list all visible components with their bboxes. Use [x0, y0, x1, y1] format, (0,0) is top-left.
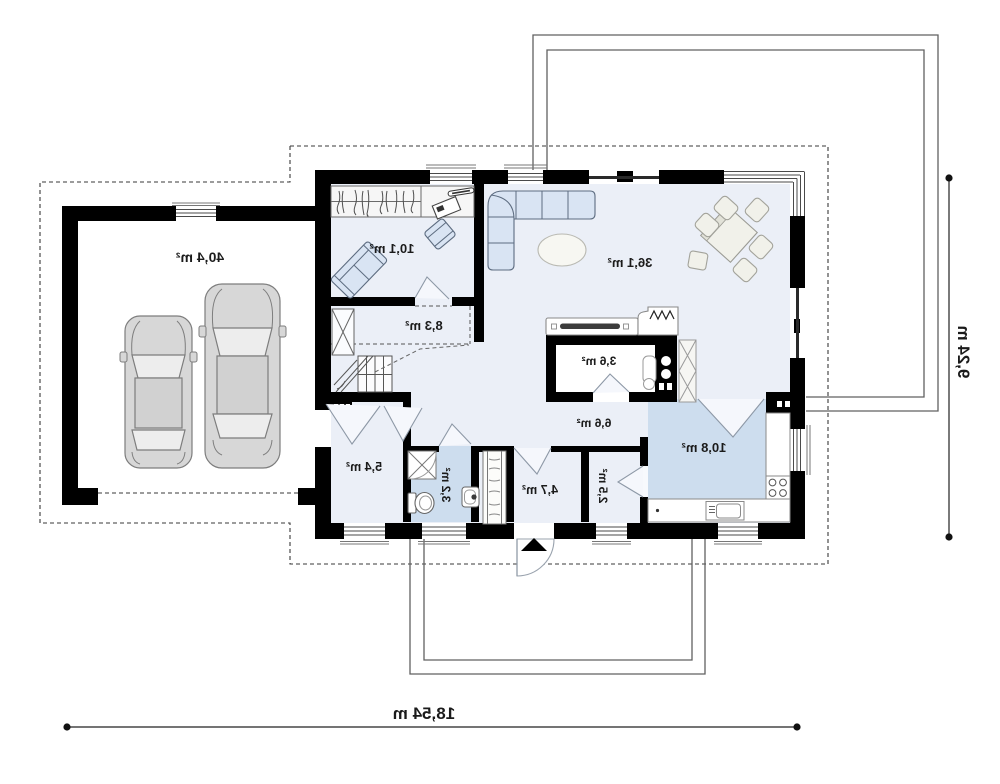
svg-text:3,6 m²: 3,6 m² — [582, 354, 617, 368]
svg-text:2,5 m²: 2,5 m² — [596, 469, 610, 504]
svg-text:9,24 m: 9,24 m — [954, 326, 973, 379]
svg-text:18,54 m: 18,54 m — [393, 704, 455, 723]
svg-text:10,1 m²: 10,1 m² — [369, 241, 414, 256]
svg-text:3,2 m²: 3,2 m² — [439, 468, 453, 503]
svg-text:8,3 m²: 8,3 m² — [405, 318, 443, 333]
svg-text:36,1 m²: 36,1 m² — [607, 255, 652, 270]
svg-text:10,8 m²: 10,8 m² — [681, 440, 726, 455]
svg-text:5,4 m²: 5,4 m² — [346, 460, 382, 474]
svg-text:40,4 m²: 40,4 m² — [176, 249, 225, 265]
svg-text:6,6 m²: 6,6 m² — [577, 416, 612, 430]
svg-text:4,7 m²: 4,7 m² — [522, 483, 558, 497]
